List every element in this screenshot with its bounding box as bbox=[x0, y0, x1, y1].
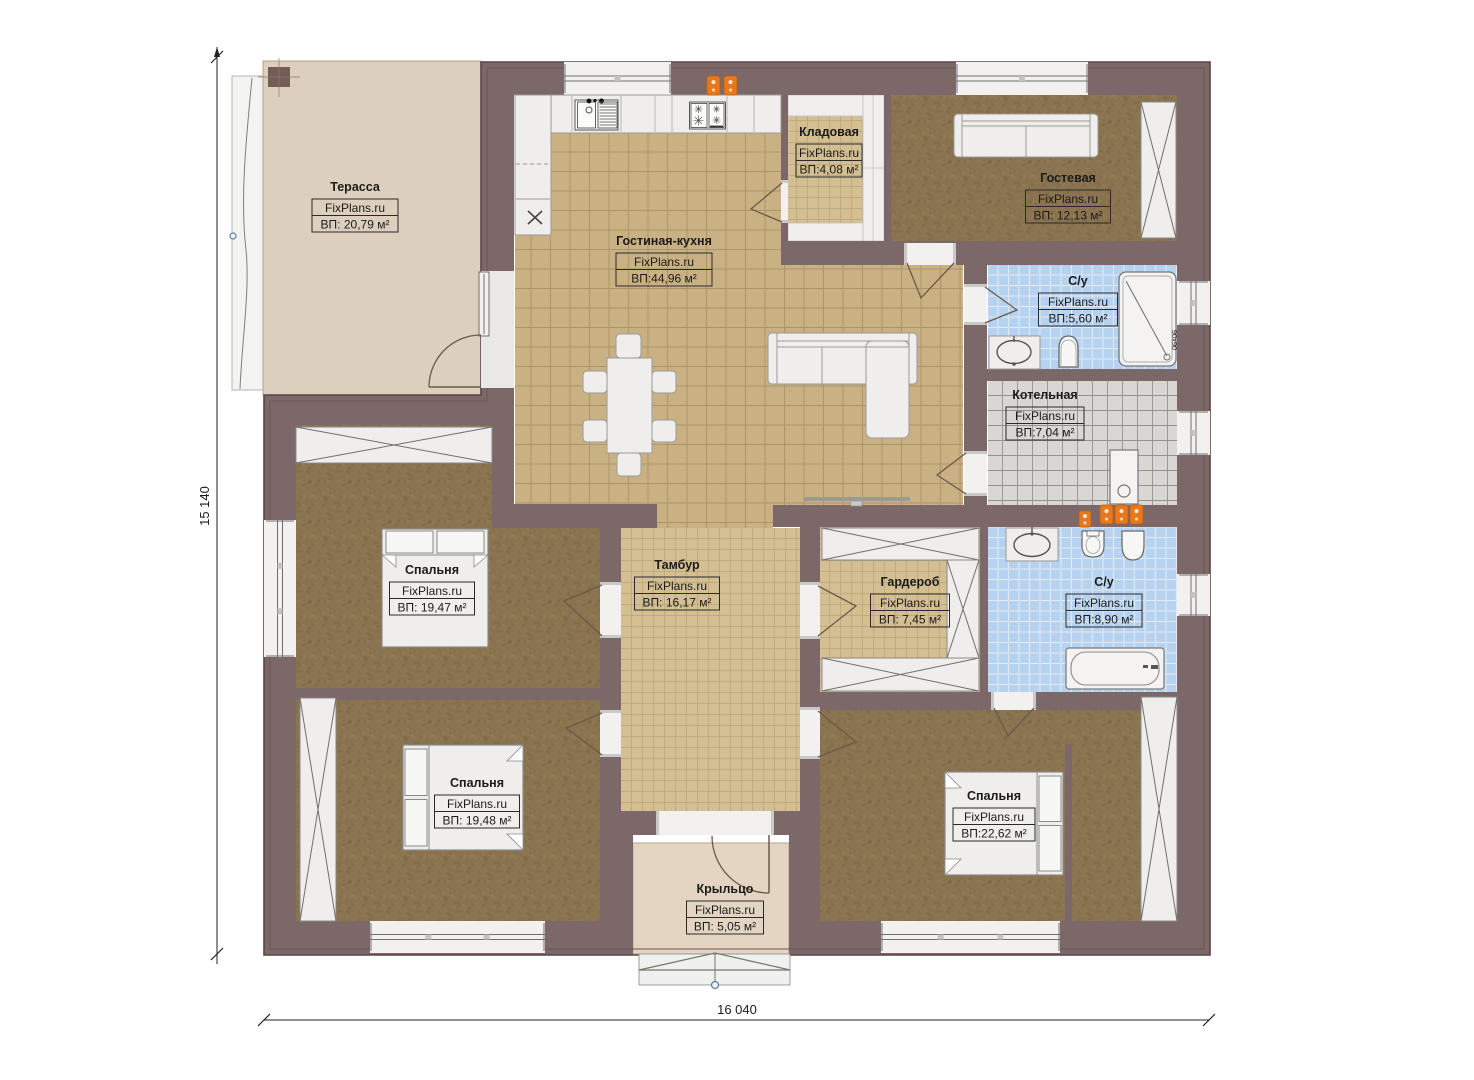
svg-text:ВП:5,60 м²: ВП:5,60 м² bbox=[1049, 312, 1108, 326]
svg-text:Тамбур: Тамбур bbox=[654, 558, 700, 572]
svg-text:ВП: 16,17 м²: ВП: 16,17 м² bbox=[643, 596, 712, 610]
svg-text:FixPlans.ru: FixPlans.ru bbox=[695, 903, 755, 917]
svg-text:ВП:22,62 м²: ВП:22,62 м² bbox=[961, 827, 1027, 841]
svg-text:ВП:8,90 м²: ВП:8,90 м² bbox=[1075, 613, 1134, 627]
svg-text:FixPlans.ru: FixPlans.ru bbox=[1038, 192, 1098, 206]
svg-text:Гардероб: Гардероб bbox=[880, 575, 939, 589]
svg-text:FixPlans.ru: FixPlans.ru bbox=[1074, 596, 1134, 610]
svg-text:FixPlans.ru: FixPlans.ru bbox=[880, 596, 940, 610]
svg-text:С/у: С/у bbox=[1068, 274, 1088, 288]
svg-text:Терасса: Терасса bbox=[330, 180, 381, 194]
svg-text:Спальня: Спальня bbox=[450, 776, 504, 790]
svg-text:ВП: 12,13 м²: ВП: 12,13 м² bbox=[1034, 209, 1103, 223]
svg-text:Кладовая: Кладовая bbox=[799, 125, 859, 139]
svg-text:Гостевая: Гостевая bbox=[1040, 171, 1096, 185]
svg-text:Крыльцо: Крыльцо bbox=[697, 882, 754, 896]
svg-text:90х90: 90х90 bbox=[1170, 330, 1179, 350]
svg-text:FixPlans.ru: FixPlans.ru bbox=[1048, 295, 1108, 309]
svg-text:FixPlans.ru: FixPlans.ru bbox=[647, 579, 707, 593]
svg-text:15 140: 15 140 bbox=[197, 486, 212, 526]
svg-text:FixPlans.ru: FixPlans.ru bbox=[447, 797, 507, 811]
svg-text:16 040: 16 040 bbox=[717, 1002, 757, 1017]
svg-text:ВП: 19,47 м²: ВП: 19,47 м² bbox=[398, 601, 467, 615]
svg-text:ВП:4,08 м²: ВП:4,08 м² bbox=[800, 163, 859, 177]
svg-text:ВП:7,04 м²: ВП:7,04 м² bbox=[1016, 426, 1075, 440]
svg-text:ВП: 19,48 м²: ВП: 19,48 м² bbox=[443, 814, 512, 828]
svg-text:Котельная: Котельная bbox=[1012, 388, 1077, 402]
svg-text:С/у: С/у bbox=[1094, 575, 1114, 589]
svg-text:ВП: 20,79 м²: ВП: 20,79 м² bbox=[321, 218, 390, 232]
svg-text:Спальня: Спальня bbox=[405, 563, 459, 577]
svg-text:ВП:44,96 м²: ВП:44,96 м² bbox=[631, 272, 697, 286]
svg-text:Гостиная-кухня: Гостиная-кухня bbox=[616, 234, 712, 248]
svg-text:FixPlans.ru: FixPlans.ru bbox=[402, 584, 462, 598]
svg-text:FixPlans.ru: FixPlans.ru bbox=[1015, 409, 1075, 423]
svg-text:FixPlans.ru: FixPlans.ru bbox=[964, 810, 1024, 824]
svg-text:FixPlans.ru: FixPlans.ru bbox=[325, 201, 385, 215]
svg-text:Спальня: Спальня bbox=[967, 789, 1021, 803]
svg-text:ВП: 5,05 м²: ВП: 5,05 м² bbox=[694, 920, 756, 934]
svg-text:FixPlans.ru: FixPlans.ru bbox=[634, 255, 694, 269]
svg-text:FixPlans.ru: FixPlans.ru bbox=[799, 146, 859, 160]
svg-text:ВП: 7,45 м²: ВП: 7,45 м² bbox=[879, 613, 941, 627]
